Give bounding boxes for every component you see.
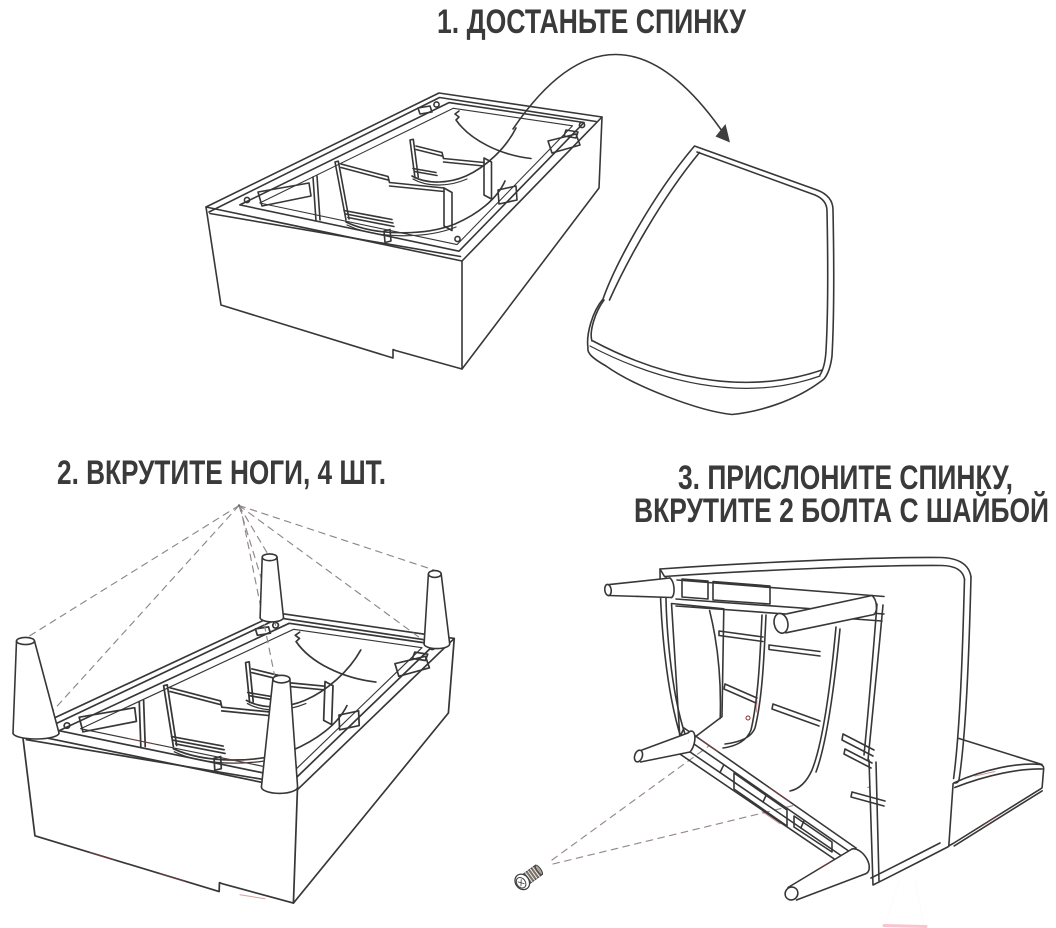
svg-text:ВКРУТИТЕ 2 БОЛТА С ШАЙБОЙ: ВКРУТИТЕ 2 БОЛТА С ШАЙБОЙ (634, 491, 1049, 530)
svg-text:2. ВКРУТИТЕ НОГИ, 4 ШТ.: 2. ВКРУТИТЕ НОГИ, 4 ШТ. (57, 454, 386, 492)
svg-text:1. ДОСТАНЬТЕ СПИНКУ: 1. ДОСТАНЬТЕ СПИНКУ (437, 3, 747, 41)
